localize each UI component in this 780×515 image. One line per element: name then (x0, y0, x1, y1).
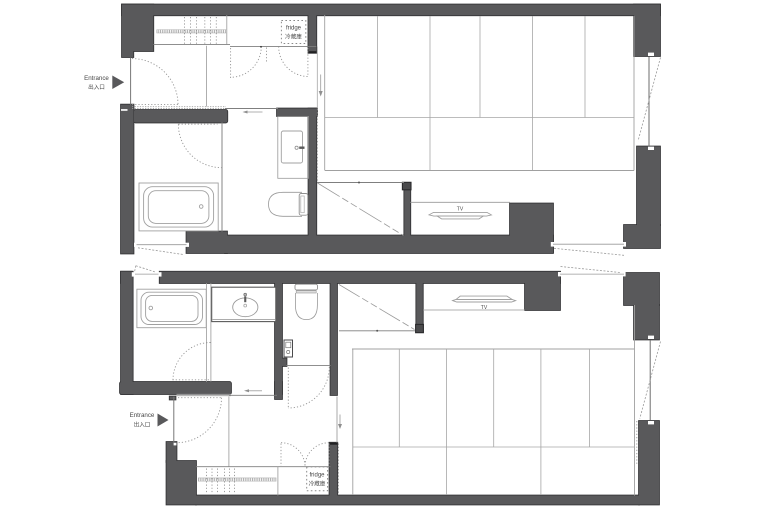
svg-text:出入口: 出入口 (88, 83, 105, 91)
svg-text:冷蔵庫: 冷蔵庫 (285, 33, 302, 41)
svg-text:冷蔵庫: 冷蔵庫 (309, 480, 326, 488)
svg-text:fridge: fridge (309, 473, 325, 479)
svg-text:出入口: 出入口 (134, 421, 151, 429)
svg-text:fridge: fridge (286, 26, 302, 32)
svg-text:TV: TV (481, 305, 488, 311)
svg-text:TV: TV (457, 206, 464, 212)
svg-text:Entrance: Entrance (84, 75, 109, 82)
svg-text:Entrance: Entrance (130, 412, 155, 419)
